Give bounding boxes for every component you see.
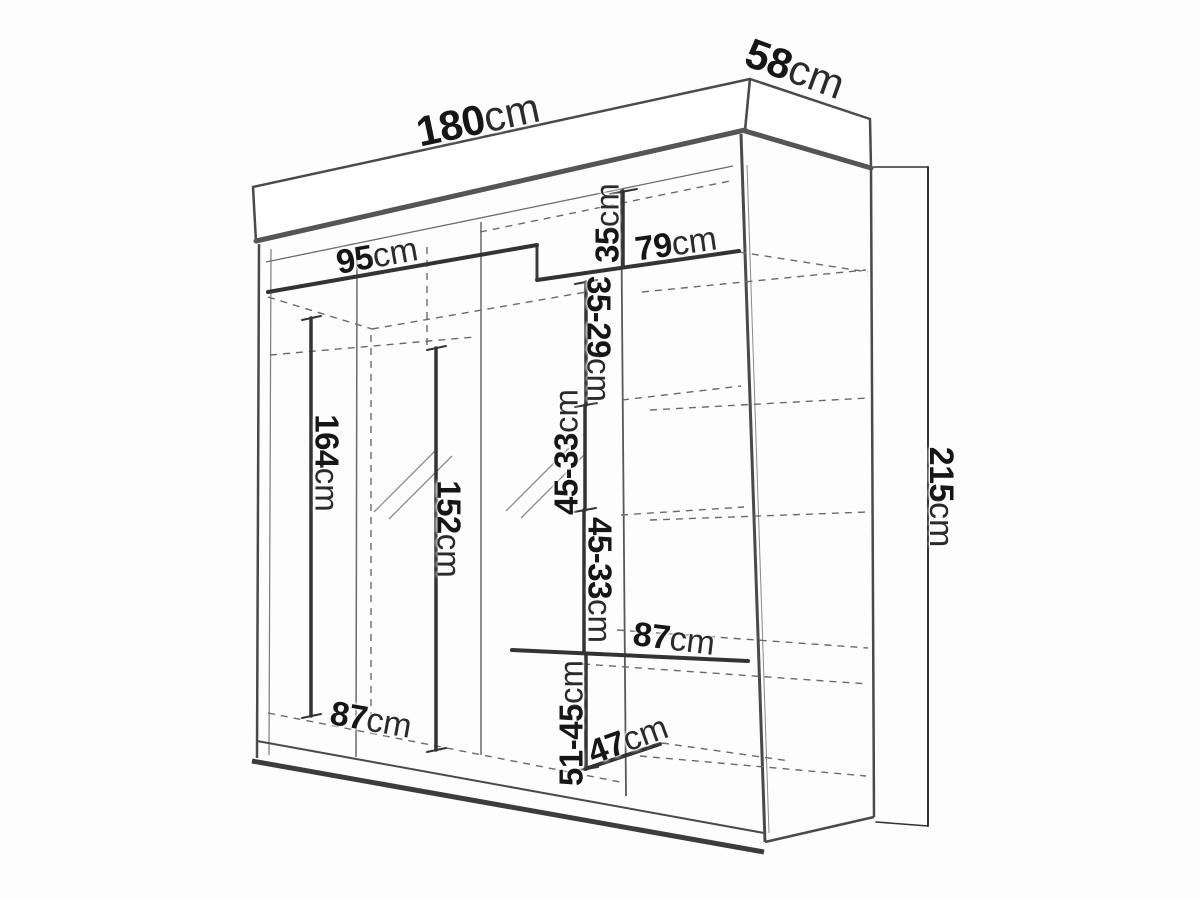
dim-value: 164: [309, 414, 346, 468]
dim-label-height: 215cm: [924, 447, 958, 548]
crown-top: [253, 79, 871, 242]
dim-value: 152: [431, 480, 468, 534]
dim-value: 79: [633, 226, 675, 269]
dim-label-left-inner-height: 164cm: [311, 414, 344, 512]
dim-unit: cm: [364, 701, 415, 746]
dim-label-gap-fourth: 45-33cm: [584, 517, 617, 643]
dim-value: 35-29: [581, 276, 618, 358]
dim-unit: cm: [548, 389, 585, 433]
dim-label-mid-shelf-width: 87cm: [631, 617, 717, 661]
dim-label-top-gap: 35cm: [591, 183, 624, 263]
dim-label-gap-second: 35-29cm: [583, 276, 616, 402]
dim-unit: cm: [370, 230, 421, 275]
dim-label-bottom-gap: 51-45cm: [555, 660, 588, 786]
dim-unit: cm: [922, 502, 960, 547]
dim-unit: cm: [669, 219, 719, 263]
dim-value: 215: [922, 447, 960, 502]
dim-unit: cm: [431, 534, 468, 578]
dim-unit: cm: [667, 620, 717, 663]
dim-unit: cm: [309, 468, 346, 512]
dim-unit: cm: [581, 358, 618, 402]
dim-value: 45-33: [582, 517, 619, 599]
dim-value: 87: [631, 615, 672, 657]
dim-label-mid-inner-height: 152cm: [433, 480, 466, 578]
wardrobe-dimension-diagram: 180cm 58cm 215cm 95cm 79cm 35cm 35-29cm …: [0, 0, 1200, 899]
dim-label-gap-third: 45-33cm: [550, 389, 583, 515]
dim-value: 35: [589, 227, 626, 263]
dim-unit: cm: [589, 183, 626, 227]
dim-value: 45-33: [548, 433, 585, 515]
dim-value: 51-45: [553, 704, 590, 786]
dim-value: 95: [333, 238, 376, 282]
dim-unit: cm: [553, 660, 590, 704]
dim-unit: cm: [582, 599, 619, 643]
